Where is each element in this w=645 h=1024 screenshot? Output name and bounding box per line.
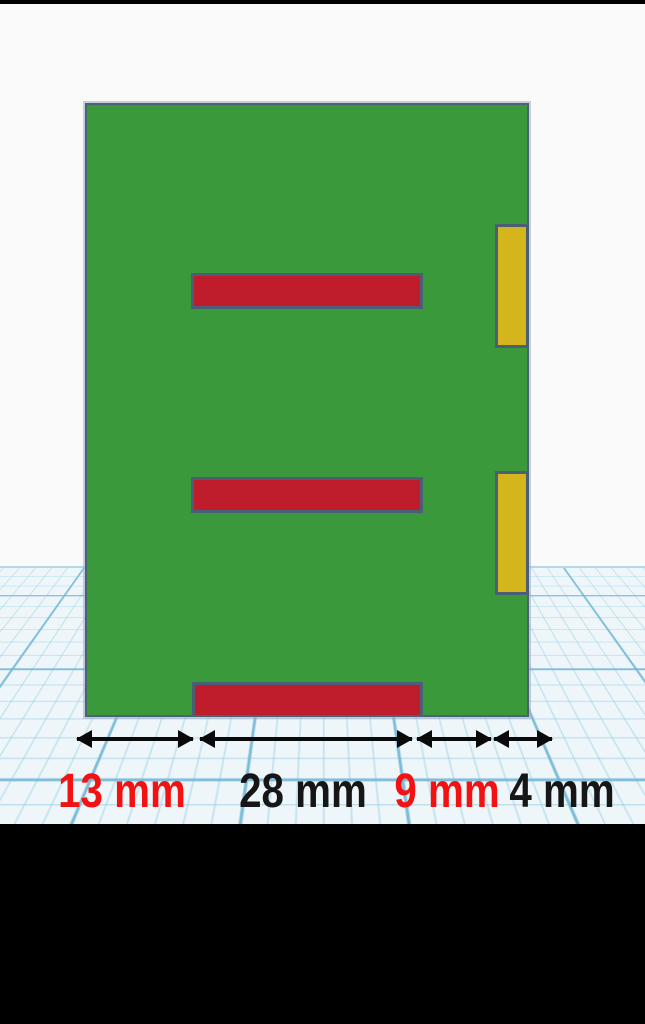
dimension-arrow-4mm	[494, 737, 552, 741]
red-slot-bottom[interactable]	[192, 682, 423, 715]
yellow-tab-top[interactable]	[495, 224, 529, 348]
dimension-arrow-9mm	[417, 737, 491, 741]
dimension-arrow-28mm	[200, 737, 412, 741]
yellow-tab-bottom[interactable]	[495, 471, 529, 595]
dimension-label-4mm: 4 mm	[509, 768, 614, 816]
letterbox-bottom	[0, 824, 645, 1024]
letterbox-top	[0, 0, 645, 4]
red-slot-middle[interactable]	[191, 477, 423, 513]
dimension-label-13mm: 13 mm	[58, 768, 186, 816]
green-board[interactable]	[85, 103, 529, 717]
dimension-label-9mm: 9 mm	[394, 768, 499, 816]
red-slot-top[interactable]	[191, 273, 423, 309]
dimension-label-28mm: 28 mm	[239, 768, 367, 816]
cad-screenshot: 13 mm 28 mm 9 mm 4 mm	[0, 0, 645, 1024]
dimension-arrow-13mm	[77, 737, 193, 741]
